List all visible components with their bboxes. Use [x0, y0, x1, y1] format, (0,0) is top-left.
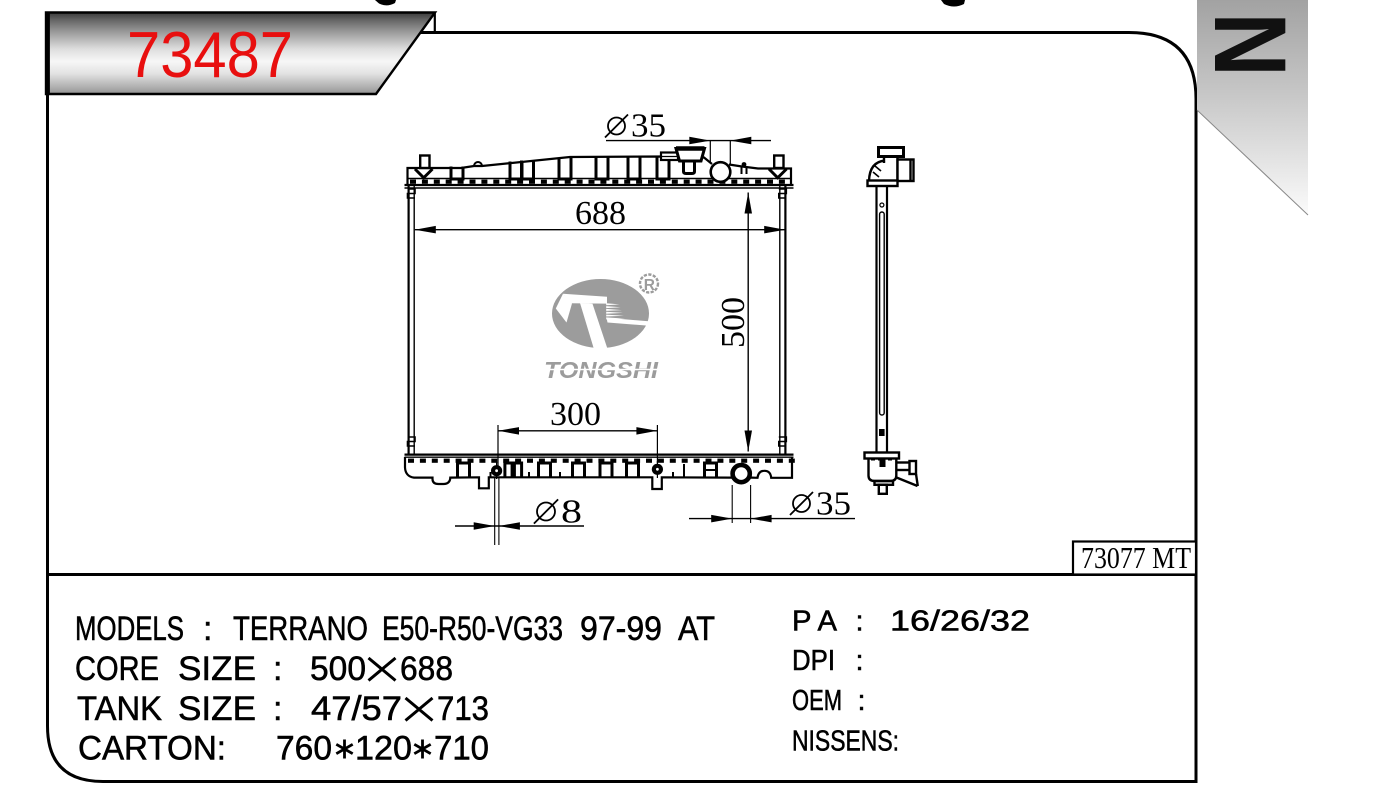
svg-text:73077 MT: 73077 MT: [1081, 540, 1191, 575]
svg-text::: :: [858, 685, 866, 717]
svg-text:47/57: 47/57: [311, 690, 402, 728]
svg-text:73487: 73487: [127, 18, 293, 91]
svg-text:16/26/32: 16/26/32: [890, 606, 1030, 638]
svg-text:710: 710: [434, 730, 489, 768]
svg-text:SIZE: SIZE: [178, 650, 256, 688]
svg-text::: :: [273, 650, 282, 688]
svg-text::: :: [203, 610, 212, 648]
svg-text:NISSENS:: NISSENS:: [792, 726, 899, 758]
svg-text::: :: [856, 606, 864, 638]
svg-text:CARTON:: CARTON:: [78, 730, 226, 768]
svg-text:8: 8: [561, 494, 582, 531]
svg-text:97-99: 97-99: [580, 610, 662, 648]
svg-text:688: 688: [575, 195, 626, 232]
svg-text:E50-R50-VG33: E50-R50-VG33: [382, 610, 563, 648]
svg-text:N: N: [1193, 12, 1307, 76]
svg-text:300: 300: [550, 396, 601, 433]
svg-text:OEM: OEM: [792, 685, 842, 717]
svg-text::: :: [273, 690, 282, 728]
svg-text:R: R: [644, 277, 655, 294]
svg-text:TERRANO: TERRANO: [233, 610, 368, 648]
svg-text:120: 120: [355, 730, 412, 768]
svg-text:760: 760: [276, 730, 332, 768]
svg-text:500: 500: [310, 650, 366, 688]
svg-text:P A: P A: [792, 606, 838, 638]
svg-text:MODELS: MODELS: [75, 610, 184, 648]
svg-text:TANK: TANK: [77, 690, 162, 728]
svg-text::: :: [856, 645, 864, 677]
svg-text:CORE: CORE: [75, 650, 159, 688]
svg-text:SIZE: SIZE: [178, 690, 256, 728]
svg-text:35: 35: [631, 108, 666, 145]
svg-text:DPI: DPI: [792, 645, 835, 677]
svg-text:500: 500: [715, 297, 752, 348]
svg-text:35: 35: [816, 486, 851, 523]
svg-text:713: 713: [437, 690, 489, 728]
svg-text:688: 688: [400, 650, 453, 688]
svg-text:AT: AT: [678, 610, 715, 648]
